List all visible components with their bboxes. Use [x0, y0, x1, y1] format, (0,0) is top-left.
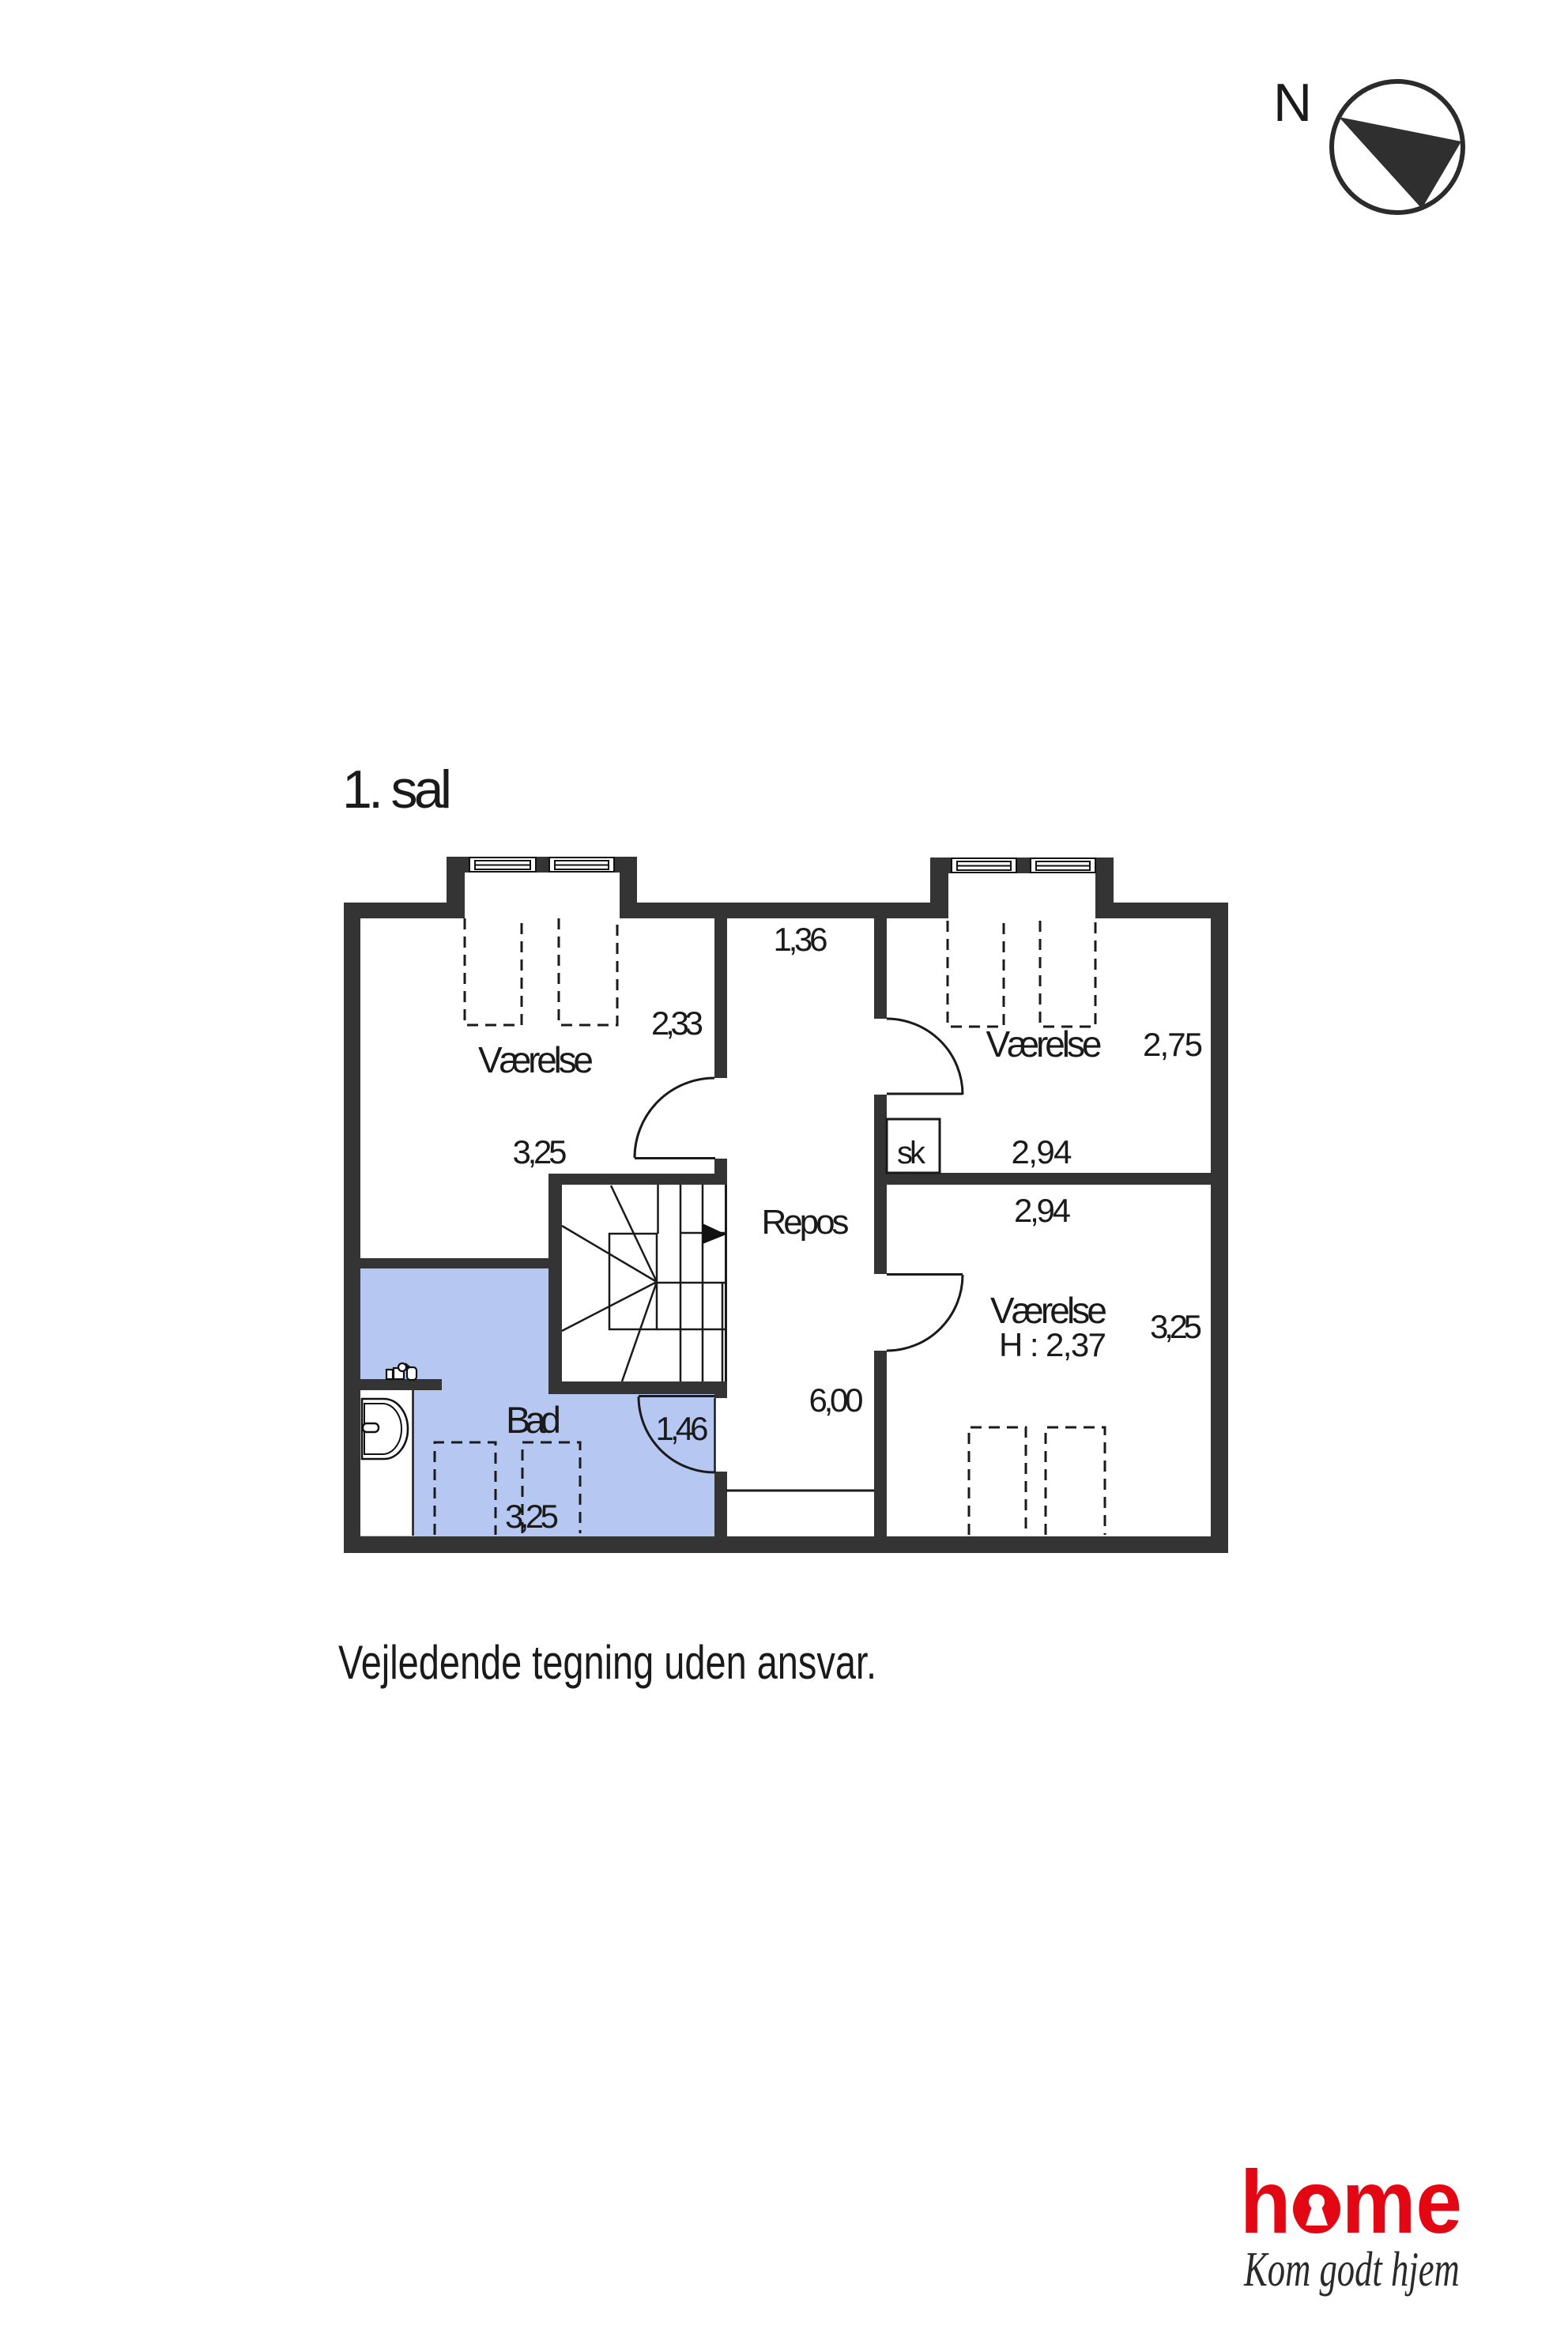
svg-text:Værelse: Værelse [478, 1039, 594, 1080]
svg-text:N: N [1273, 73, 1312, 133]
svg-text:3,25: 3,25 [513, 1133, 567, 1170]
svg-text:sk: sk [897, 1136, 926, 1170]
svg-text:Værelse: Værelse [986, 1023, 1102, 1065]
svg-text:Vejledende tegning uden ansvar: Vejledende tegning uden ansvar. [338, 1636, 876, 1689]
svg-text:home: home [1240, 2152, 1462, 2252]
svg-text:Værelse: Værelse [990, 1290, 1107, 1331]
svg-text:6,00: 6,00 [809, 1381, 864, 1419]
svg-text:3,25: 3,25 [1150, 1308, 1202, 1345]
svg-text:Bad: Bad [506, 1399, 561, 1441]
svg-text:1. sal: 1. sal [342, 759, 452, 820]
svg-text:H : 2,37: H : 2,37 [999, 1326, 1106, 1363]
svg-text:1,46: 1,46 [656, 1410, 709, 1447]
svg-text:2,33: 2,33 [651, 1004, 703, 1042]
svg-text:1,36: 1,36 [774, 921, 828, 958]
svg-text:2,94: 2,94 [1012, 1133, 1072, 1170]
svg-text:3,25: 3,25 [505, 1498, 559, 1535]
svg-text:Repos: Repos [762, 1203, 850, 1242]
svg-text:2,75: 2,75 [1143, 1026, 1203, 1063]
svg-text:2,94: 2,94 [1014, 1192, 1071, 1229]
svg-text:Kom godt hjem: Kom godt hjem [1243, 2242, 1460, 2297]
